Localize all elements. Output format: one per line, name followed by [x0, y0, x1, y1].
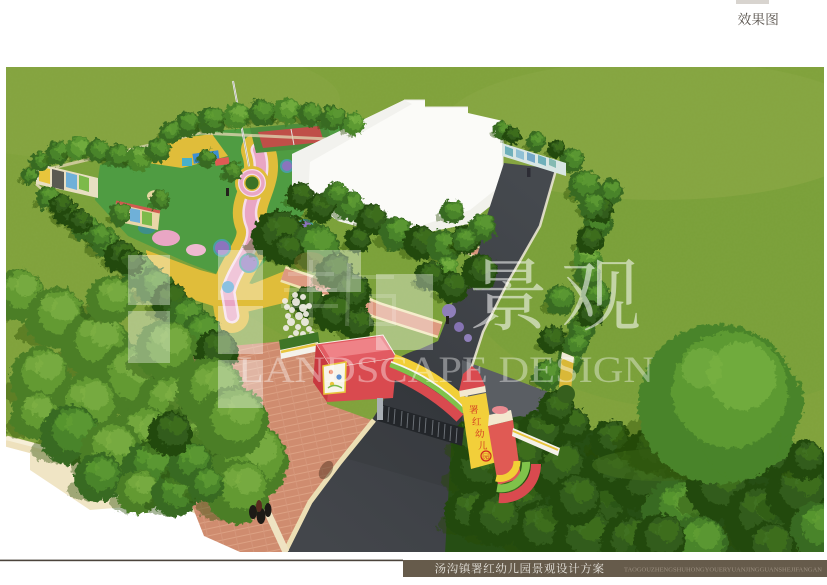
svg-text:LANDSCAPE DESIGN: LANDSCAPE DESIGN [238, 350, 654, 391]
svg-text:TAOGOUZHENGSHUHONGYOUERYUANJIN: TAOGOUZHENGSHUHONGYOUERYUANJINGGUANSHEJI… [624, 567, 822, 574]
